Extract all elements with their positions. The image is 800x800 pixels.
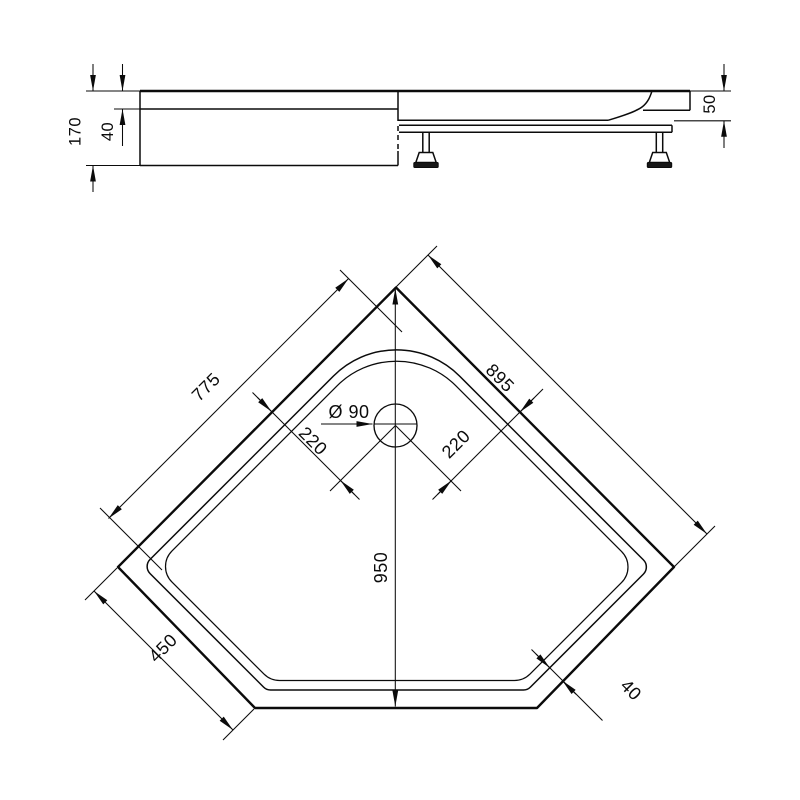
adjustable-foot-right (647, 132, 671, 167)
dimension-170: 170 (67, 64, 94, 192)
technical-drawing-page: 170 40 50 Ø 90 (0, 0, 800, 800)
side-extension-lines (86, 91, 731, 166)
dim-label-drain-offset-left: 220 (295, 423, 331, 459)
tray-underside-profile (398, 91, 690, 120)
support-frame (399, 125, 672, 132)
foot-base-plate (414, 163, 438, 168)
foot-base-plate (647, 163, 671, 168)
dim-label-rim-width: 40 (616, 675, 645, 704)
front-panel (140, 91, 398, 166)
tray-rim-inner-edge (147, 350, 646, 690)
technical-drawing: 170 40 50 Ø 90 (0, 0, 800, 800)
dim-label-edge-height: 50 (701, 94, 719, 113)
drain-diagonal-left (330, 426, 396, 492)
dim-label-drain-diameter: Ø 90 (328, 402, 369, 422)
plan-view: Ø 90 950 775 895 450 (85, 246, 715, 740)
dimension-40-side: 40 (99, 64, 123, 146)
dim-label-front-side: 450 (145, 630, 181, 666)
dimension-895: 895 (393, 246, 715, 570)
dimension-40-plan: 40 (532, 650, 646, 721)
dimension-drain-diameter: Ø 90 (321, 402, 373, 424)
dim-label-inner-width: 775 (188, 369, 224, 405)
tray-slope-curve (608, 91, 652, 120)
basin-edge (166, 361, 628, 680)
dimension-50: 50 (701, 64, 724, 148)
dim-label-depth: 950 (371, 552, 391, 584)
dim-label-wall-edge: 895 (482, 360, 518, 396)
side-view: 170 40 50 (67, 64, 732, 192)
dimension-220-right: 220 (433, 389, 544, 500)
dim-label-rim-overlap: 40 (99, 122, 117, 141)
adjustable-foot-left (414, 132, 438, 167)
dim-label-total-height: 170 (67, 117, 85, 146)
dim-label-drain-offset-right: 220 (438, 426, 474, 462)
